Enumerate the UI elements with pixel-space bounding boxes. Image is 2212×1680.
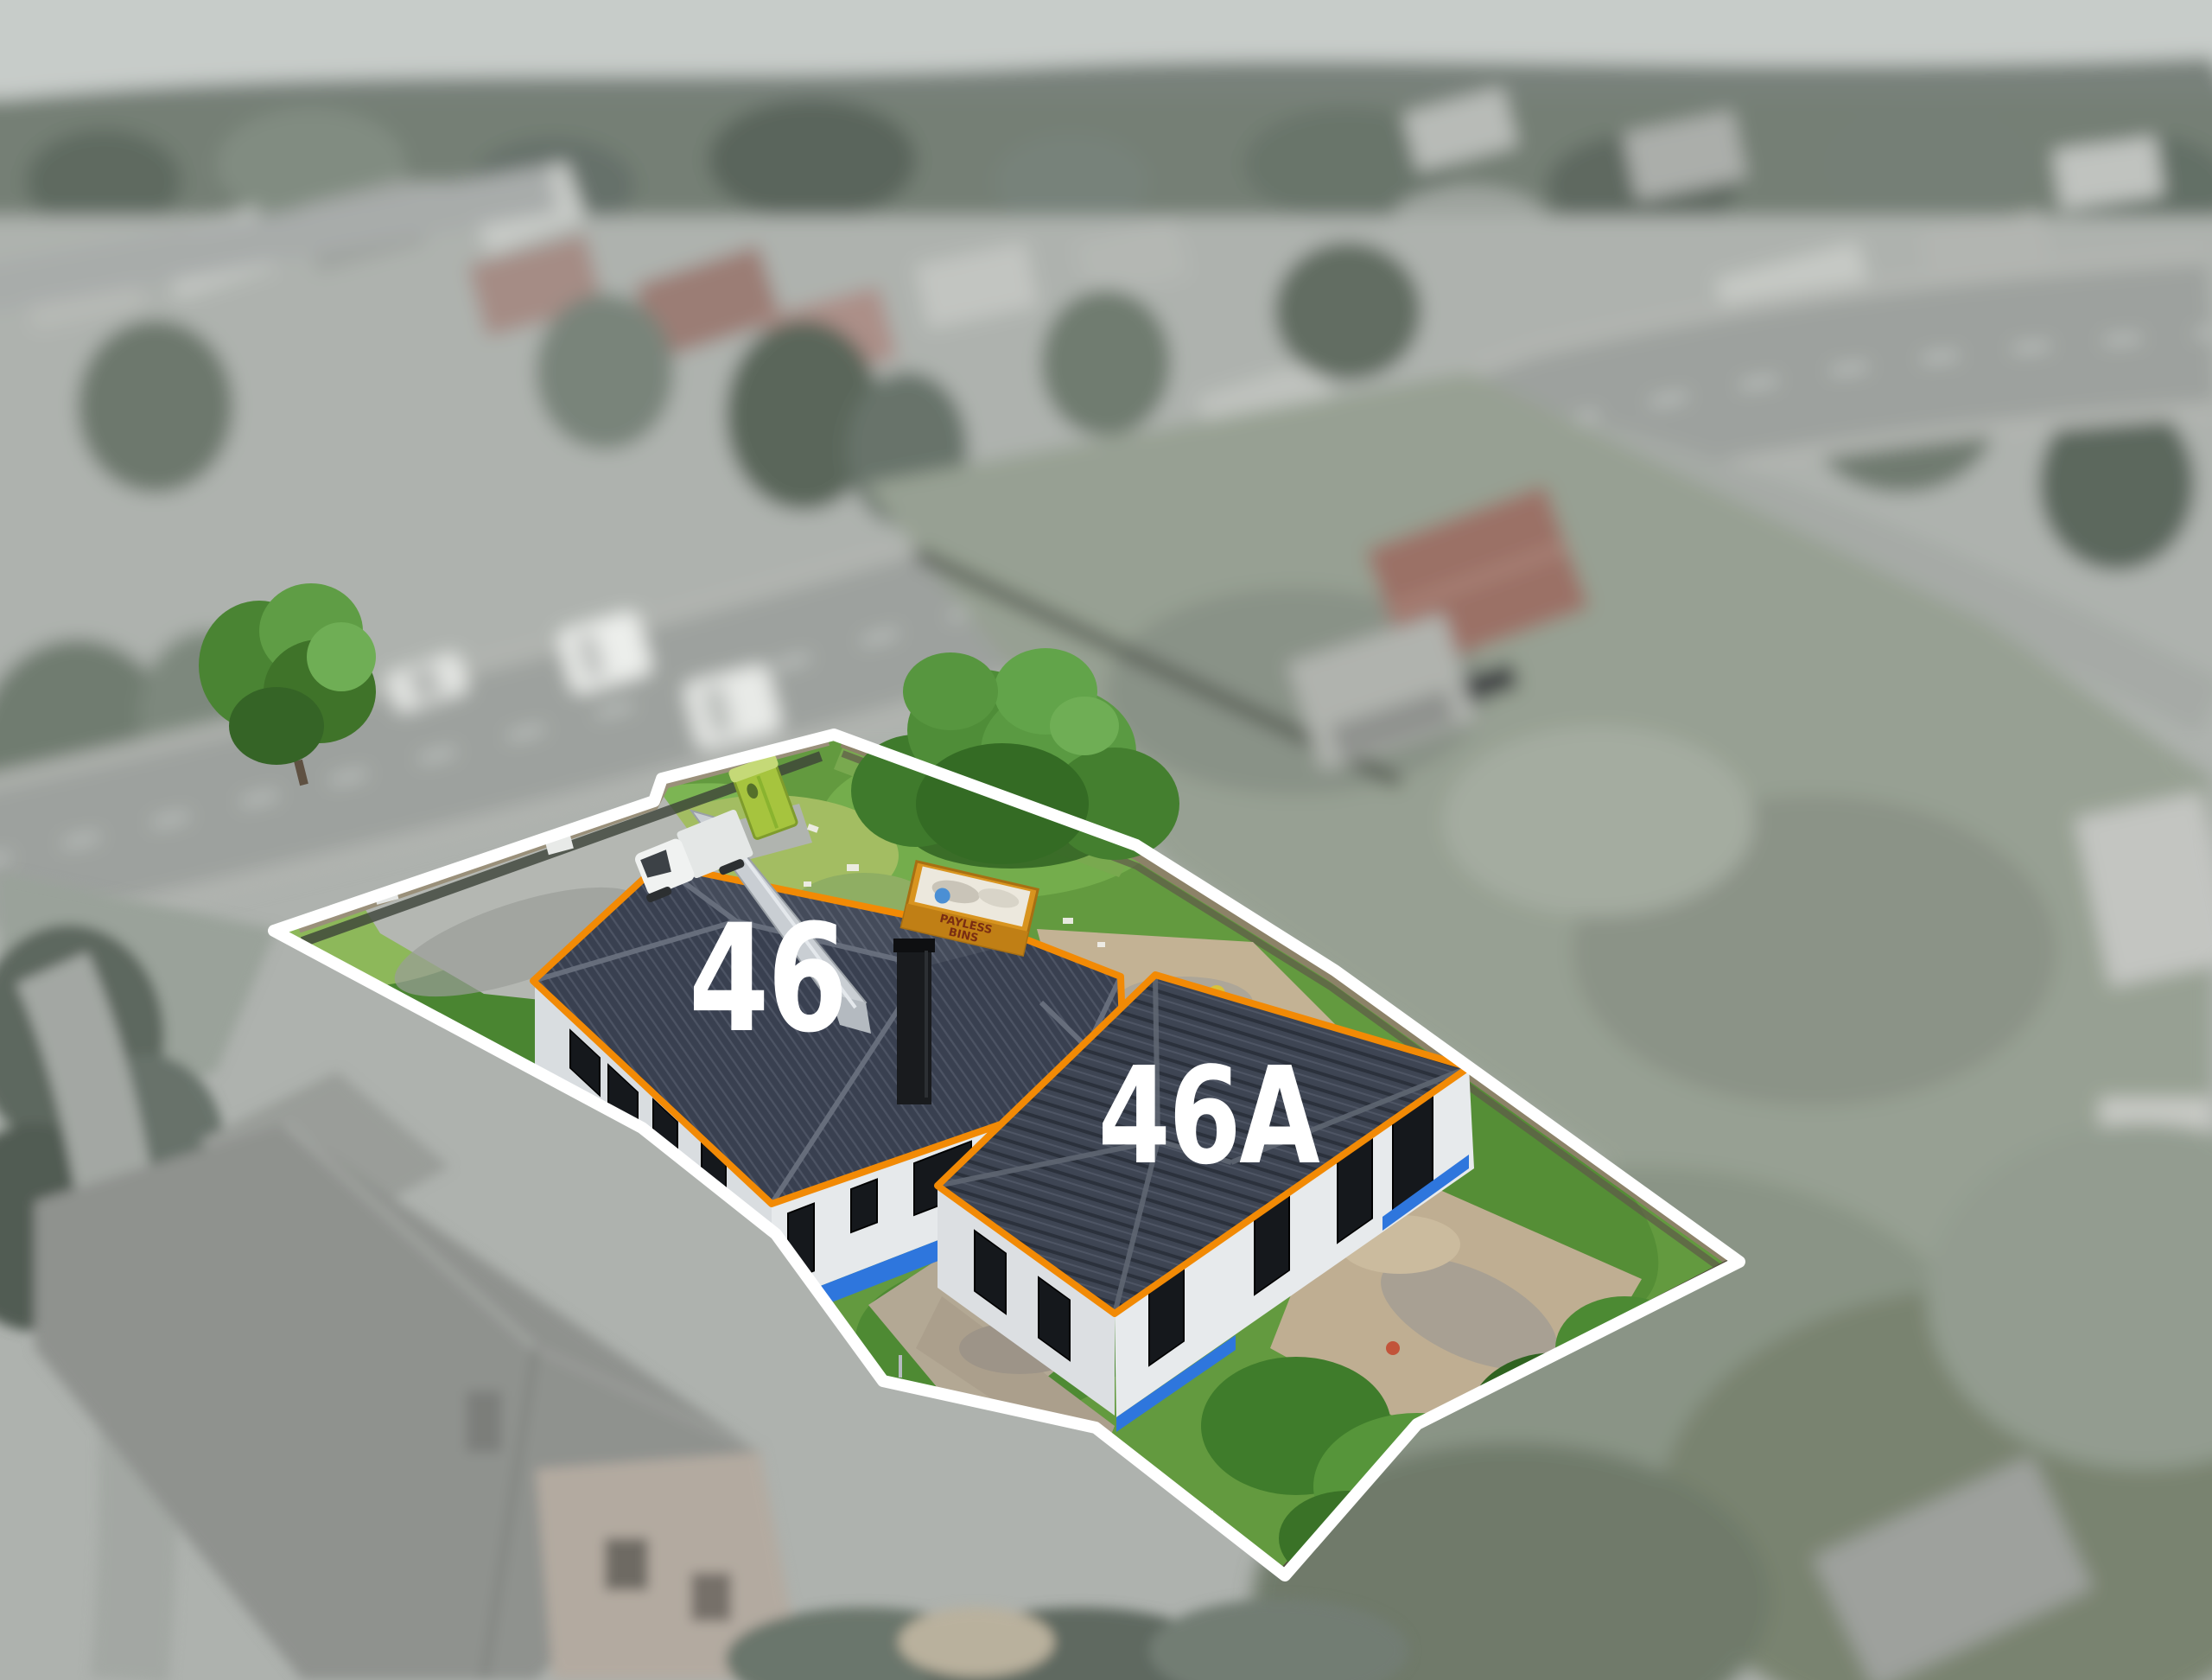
house-46-chimney	[893, 939, 935, 1104]
aerial-photo-canvas: PAYLESS BINS	[0, 0, 2212, 1680]
bottom-center-vegetation	[726, 1599, 1408, 1680]
lot-label-46: 46	[689, 894, 846, 1066]
lot-label-46a: 46A	[1098, 1038, 1320, 1194]
aerial-photo: PAYLESS BINS	[0, 0, 2212, 1680]
